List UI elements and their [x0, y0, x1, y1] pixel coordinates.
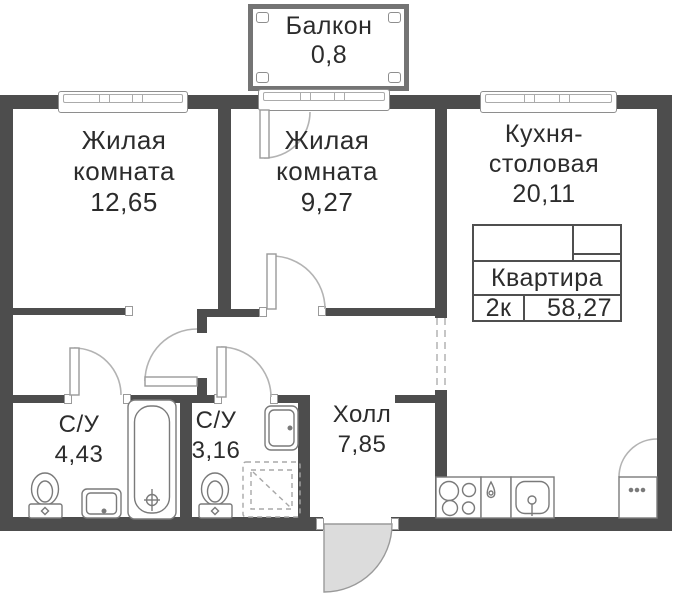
- room-name: С/У: [192, 406, 241, 436]
- room-name: Кухня-: [489, 119, 599, 149]
- hall-label: Холл 7,85: [333, 400, 392, 460]
- door-leaf-vestibule: [145, 377, 197, 386]
- room-area: 4,43: [55, 440, 104, 470]
- living1-label: Жилая комната 12,65: [73, 125, 175, 218]
- room-area: 3,16: [192, 436, 241, 466]
- door-leaf-balcony: [260, 110, 269, 158]
- room-name: Жилая: [276, 125, 378, 156]
- entrance-door-swing: [324, 524, 392, 592]
- door-arc-bath1: [74, 348, 121, 395]
- floor-plan: Балкон 0,8: [0, 0, 675, 600]
- room-name: комната: [73, 156, 175, 187]
- bath2-label: С/У 3,16: [192, 406, 241, 466]
- room-area: 7,85: [333, 430, 392, 460]
- fridge-door-arc: [619, 439, 657, 477]
- room-area: 9,27: [276, 187, 378, 218]
- kitchen-sink-icon: [511, 477, 554, 518]
- shower-icon: [243, 462, 300, 517]
- bath1-label: С/У 4,43: [55, 410, 104, 470]
- sink-icon: [82, 489, 121, 518]
- room-name: столовая: [489, 149, 599, 179]
- fridge-icon: [619, 477, 657, 518]
- toilet-icon: [29, 473, 62, 518]
- door-arc-living2: [272, 256, 325, 309]
- room-area: 12,65: [73, 187, 175, 218]
- apartment-total-area: 58,27: [525, 296, 612, 320]
- room-name: С/У: [55, 410, 104, 440]
- table-line: [572, 253, 620, 255]
- kitchen-opening-dashed: [437, 318, 445, 390]
- cabinet-droplet-icon: [481, 477, 511, 518]
- bathtub-icon: [128, 400, 176, 519]
- stove-icon: [436, 477, 481, 518]
- door-leaf-bath2: [217, 347, 226, 397]
- apartment-info-table: Квартира 2к 58,27: [472, 224, 622, 322]
- door-leaf-bath1: [70, 348, 79, 395]
- toilet-icon: [199, 473, 232, 518]
- door-arc-vestibule: [145, 329, 197, 381]
- kitchen-label: Кухня- столовая 20,11: [489, 119, 599, 209]
- door-leaf-living2: [267, 254, 276, 309]
- room-area: 20,11: [489, 179, 599, 209]
- room-name: Холл: [333, 400, 392, 430]
- apartment-type: 2к: [474, 296, 523, 320]
- apartment-title: Квартира: [474, 262, 620, 294]
- room-name: Жилая: [73, 125, 175, 156]
- room-name: комната: [276, 156, 378, 187]
- door-arc-bath2: [221, 347, 271, 397]
- wall-sink-icon: [265, 406, 298, 450]
- living2-label: Жилая комната 9,27: [276, 125, 378, 218]
